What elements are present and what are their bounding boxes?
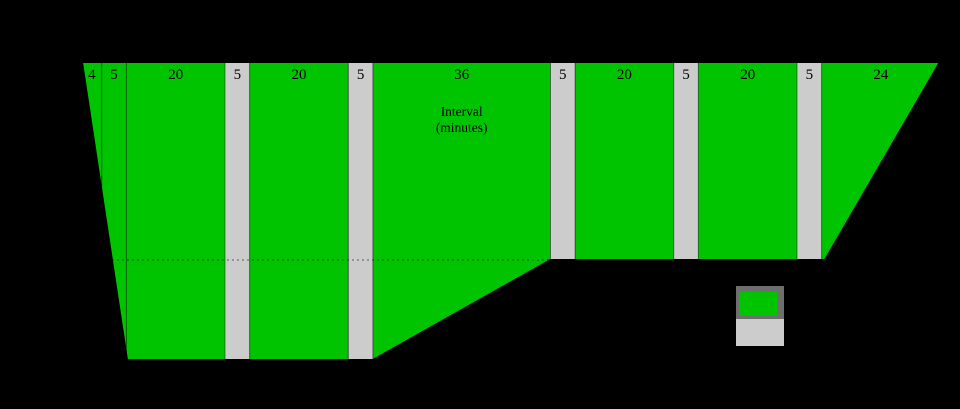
interval-stripes xyxy=(82,62,940,360)
interval-number-label: 20 xyxy=(168,67,183,83)
interval-number-label: 5 xyxy=(559,67,567,83)
interval-number-label: 5 xyxy=(806,67,814,83)
legend-gray-swatch xyxy=(736,319,784,346)
interval-number-label: 20 xyxy=(617,67,632,83)
interval-stripe xyxy=(348,62,373,360)
interval-number-label: 20 xyxy=(291,67,306,83)
annotation-interval-line2: (minutes) xyxy=(436,120,488,135)
legend-green-swatch xyxy=(739,292,777,316)
interval-number-label: 24 xyxy=(873,67,889,83)
interval-stripe xyxy=(225,62,250,360)
interval-stripe xyxy=(575,62,674,360)
annotation-interval-line1: Interval xyxy=(441,104,483,119)
interval-number-label: 5 xyxy=(682,67,690,83)
interval-band-chart: 4520520536520520524 Interval (minutes) xyxy=(0,0,960,409)
interval-number-label: 4 xyxy=(88,67,96,83)
interval-stripe xyxy=(674,62,699,360)
interval-number-label: 5 xyxy=(110,67,118,83)
interval-stripe xyxy=(550,62,575,360)
interval-stripe xyxy=(82,62,102,360)
interval-stripe xyxy=(822,62,940,360)
legend xyxy=(736,286,784,346)
interval-stripe xyxy=(797,62,822,360)
interval-number-label: 5 xyxy=(357,67,365,83)
interval-number-label: 36 xyxy=(454,67,470,83)
interval-stripe xyxy=(126,62,225,360)
interval-number-label: 5 xyxy=(234,67,242,83)
chart-canvas: 4520520536520520524 Interval (minutes) xyxy=(0,0,960,409)
interval-number-label: 20 xyxy=(740,67,755,83)
interval-stripe xyxy=(250,62,349,360)
